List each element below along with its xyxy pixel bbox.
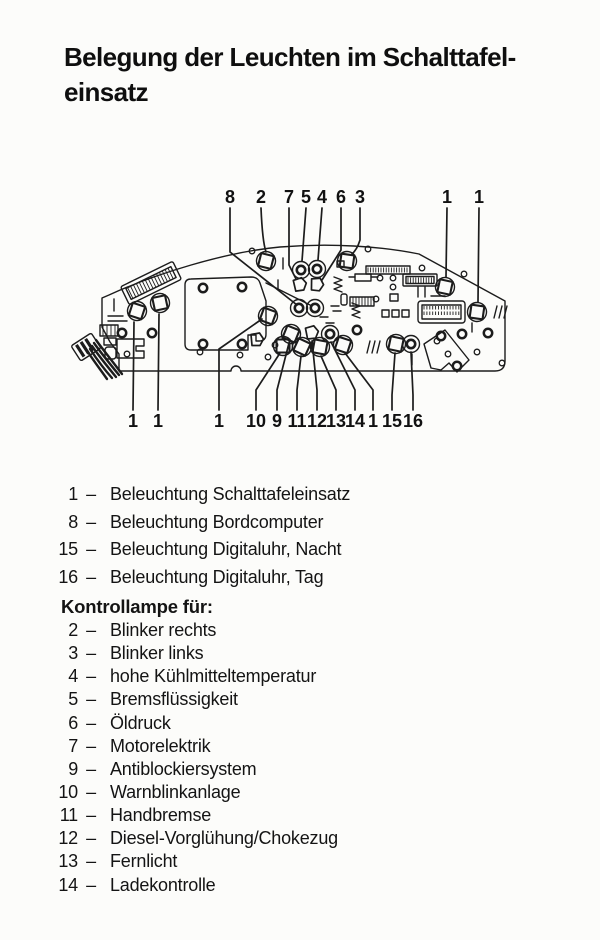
legend-item-number: 16: [58, 564, 78, 592]
legend-item-number: 14: [58, 874, 78, 897]
legend-item: 10 – Warnblinkanlage: [58, 781, 338, 804]
bulb-socket: [279, 322, 304, 347]
legend-item-separator: –: [84, 874, 98, 897]
callout-number: 14: [345, 411, 365, 431]
legend-item-number: 5: [58, 688, 78, 711]
legend-item-label: Beleuchtung Digitaluhr, Nacht: [110, 536, 341, 564]
legend-item: 3 – Blinker links: [58, 642, 338, 665]
legend-item-label: Beleuchtung Schalttafeleinsatz: [110, 481, 350, 509]
leader-line: [312, 341, 317, 410]
callout-number: 1: [214, 411, 224, 431]
bottom-callout-numbers: 1111091112131411516: [128, 411, 423, 431]
pcb-hole: [445, 351, 451, 357]
legend-item-label: Blinker rechts: [110, 619, 216, 642]
bulb-socket: [274, 337, 293, 356]
legend-item-label: Motorelektrik: [110, 735, 210, 758]
legend-item: 16 – Beleuchtung Digitaluhr, Tag: [58, 564, 350, 592]
pcb-hole: [237, 352, 243, 358]
screw: [453, 362, 461, 370]
pcb-hole: [124, 351, 130, 357]
legend-item-label: Diesel-Vorglühung/Chokezug: [110, 827, 338, 850]
callout-number: 10: [246, 411, 266, 431]
callout-number: 1: [442, 187, 452, 207]
pcb-hole: [461, 271, 467, 277]
callout-number: 1: [153, 411, 163, 431]
pcb-hole: [474, 349, 480, 355]
legend-item-number: 7: [58, 735, 78, 758]
legend-item-separator: –: [84, 619, 98, 642]
callout-number: 1: [368, 411, 378, 431]
legend-item-separator: –: [84, 665, 98, 688]
legend-item-number: 12: [58, 827, 78, 850]
leader-line: [261, 208, 266, 252]
legend-item-separator: –: [84, 804, 98, 827]
screw: [238, 283, 246, 291]
ring-bulb-socket: [307, 300, 324, 317]
legend-item: 12 – Diesel-Vorglühung/Chokezug: [58, 827, 338, 850]
callout-number: 11: [287, 411, 306, 431]
legend-item-separator: –: [84, 509, 98, 537]
screw: [199, 340, 207, 348]
callout-number: 6: [336, 187, 346, 207]
ring-bulb-socket: [309, 261, 326, 278]
leader-line: [302, 208, 306, 261]
callout-number: 2: [256, 187, 266, 207]
legend-item-number: 6: [58, 712, 78, 735]
lighting-legend-list: 1 – Beleuchtung Schalttafeleinsatz 8 – B…: [58, 481, 350, 591]
leader-line: [318, 208, 322, 260]
legend-item-label: Öldruck: [110, 712, 171, 735]
legend-item-label: Beleuchtung Digitaluhr, Tag: [110, 564, 323, 592]
screw: [353, 326, 361, 334]
screw: [458, 330, 466, 338]
callout-number: 4: [317, 187, 327, 207]
page-title-line1: Belegung der Leuchten im Schalttafel-: [64, 40, 564, 75]
callout-number: 5: [301, 187, 311, 207]
legend-item-label: Fernlicht: [110, 850, 177, 873]
legend-item: 8 – Beleuchtung Bordcomputer: [58, 509, 350, 537]
page-title: Belegung der Leuchten im Schalttafel- ei…: [64, 40, 564, 110]
legend-item-separator: –: [84, 642, 98, 665]
leader-line: [297, 356, 301, 410]
leader-line: [158, 314, 159, 410]
callout-number: 3: [355, 187, 365, 207]
leader-line: [446, 208, 447, 277]
legend-item-number: 3: [58, 642, 78, 665]
screw: [238, 340, 246, 348]
leader-line: [351, 208, 360, 255]
legend-item: 11 – Handbremse: [58, 804, 338, 827]
screw: [148, 329, 156, 337]
callout-number: 15: [382, 411, 402, 431]
legend-item-label: Warnblinkanlage: [110, 781, 240, 804]
legend-item-number: 11: [58, 804, 78, 827]
legend-item: 13 – Fernlicht: [58, 850, 338, 873]
callout-number: 1: [128, 411, 138, 431]
legend-item-label: Blinker links: [110, 642, 203, 665]
legend-item: 1 – Beleuchtung Schalttafeleinsatz: [58, 481, 350, 509]
bulb-socket: [466, 301, 487, 322]
legend-item: 6 – Öldruck: [58, 712, 338, 735]
legend-item-label: Bremsflüssigkeit: [110, 688, 238, 711]
legend-item-separator: –: [84, 536, 98, 564]
legend-item-separator: –: [84, 781, 98, 804]
legend-item-label: hohe Kühlmitteltemperatur: [110, 665, 316, 688]
legend-item-label: Beleuchtung Bordcomputer: [110, 509, 323, 537]
legend-item-separator: –: [84, 712, 98, 735]
pcb-hole: [265, 354, 271, 360]
legend-item-number: 15: [58, 536, 78, 564]
pcb-hole: [390, 284, 396, 290]
edge-connector: [121, 261, 182, 304]
legend-item-separator: –: [84, 850, 98, 873]
legend-item-separator: –: [84, 735, 98, 758]
legend-item-number: 2: [58, 619, 78, 642]
bulb-socket: [385, 333, 408, 356]
legend-item-number: 4: [58, 665, 78, 688]
legend-item: 4 – hohe Kühlmitteltemperatur: [58, 665, 338, 688]
leader-line: [392, 353, 395, 410]
callout-number: 16: [403, 411, 423, 431]
bulb-socket: [149, 292, 172, 315]
legend-item-number: 8: [58, 509, 78, 537]
legend-item-number: 9: [58, 758, 78, 781]
legend-item-number: 13: [58, 850, 78, 873]
legend-item-separator: –: [84, 758, 98, 781]
page-title-line2: einsatz: [64, 75, 564, 110]
empty-socket: [305, 325, 319, 339]
pcb-hole: [377, 275, 383, 281]
legend-item-separator: –: [84, 688, 98, 711]
callout-number: 1: [474, 187, 484, 207]
pcb-hole: [419, 265, 425, 271]
legend-item: 15 – Beleuchtung Digitaluhr, Nacht: [58, 536, 350, 564]
screw: [199, 284, 207, 292]
screw: [118, 329, 126, 337]
pcb-hole: [499, 360, 505, 366]
leader-line: [345, 353, 373, 410]
bottom-leader-lines: [133, 314, 413, 410]
leader-line: [411, 352, 413, 410]
gauge-housing: [185, 277, 266, 350]
callout-number: 13: [326, 411, 346, 431]
legend-item: 14 – Ladekontrolle: [58, 874, 338, 897]
legend-item-label: Ladekontrolle: [110, 874, 215, 897]
legend-item-label: Antiblockiersystem: [110, 758, 256, 781]
leader-line: [478, 208, 479, 302]
legend-item-number: 10: [58, 781, 78, 804]
pcb-hole: [390, 275, 396, 281]
legend-item: 9 – Antiblockiersystem: [58, 758, 338, 781]
callout-number: 9: [272, 411, 282, 431]
leader-line: [133, 322, 134, 410]
screw: [484, 329, 492, 337]
legend-item-number: 1: [58, 481, 78, 509]
bulb-socket: [256, 304, 280, 328]
legend-item-separator: –: [84, 827, 98, 850]
top-callout-numbers: 827546311: [225, 187, 484, 207]
legend-item-separator: –: [84, 481, 98, 509]
legend-item: 5 – Bremsflüssigkeit: [58, 688, 338, 711]
legend-item-label: Handbremse: [110, 804, 211, 827]
callout-number: 12: [307, 411, 327, 431]
legend-item-separator: –: [84, 564, 98, 592]
callout-number: 7: [284, 187, 294, 207]
section-heading: Kontrollampe für:: [61, 596, 213, 618]
legend-item: 7 – Motorelektrik: [58, 735, 338, 758]
indicator-legend-list: 2 – Blinker rechts 3 – Blinker links 4 –…: [58, 619, 338, 897]
instrument-cluster-rear-diagram: 827546311 1111091112131411516: [55, 180, 555, 435]
legend-item: 2 – Blinker rechts: [58, 619, 338, 642]
ring-bulb-socket: [322, 326, 339, 343]
bulb-socket: [254, 249, 277, 272]
empty-socket: [251, 333, 264, 346]
callout-number: 8: [225, 187, 235, 207]
manual-page: Belegung der Leuchten im Schalttafel- ei…: [0, 0, 600, 940]
leader-line: [321, 356, 336, 410]
